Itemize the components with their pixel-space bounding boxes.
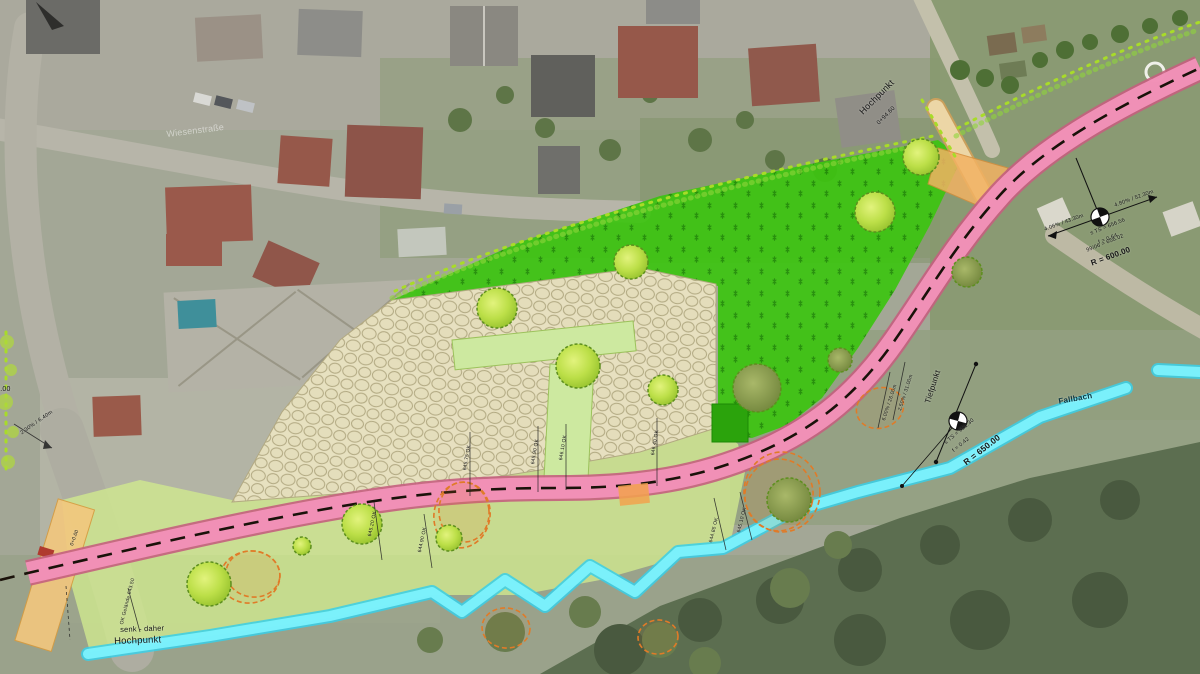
site-plan-map: Hochpunkt0+94.604.06% / 43.30m4.80% / 52… [0, 0, 1200, 674]
path-crossing-marker [618, 483, 650, 506]
green-patch [712, 404, 748, 442]
pool [177, 299, 216, 329]
plan-canvas [0, 0, 1200, 674]
